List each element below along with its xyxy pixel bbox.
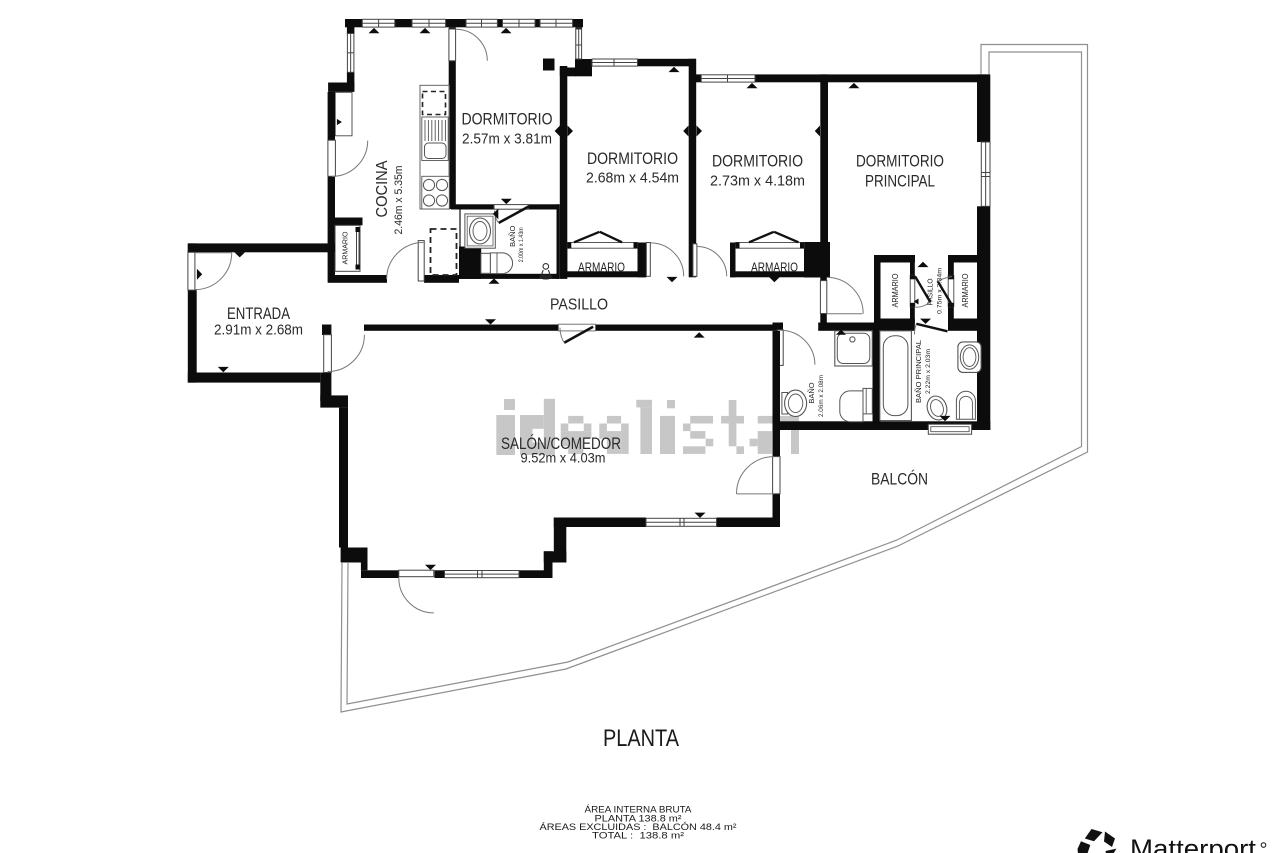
- svg-text:ENTRADA: ENTRADA: [227, 305, 290, 323]
- svg-text:2.68m x 4.54m: 2.68m x 4.54m: [586, 170, 679, 187]
- svg-text:2.00m x 1.43m: 2.00m x 1.43m: [518, 227, 525, 262]
- svg-text:2.22m x 2.03m: 2.22m x 2.03m: [925, 349, 932, 394]
- svg-text:2.06m x 2.08m: 2.06m x 2.08m: [818, 375, 825, 417]
- svg-text:ARMARIO: ARMARIO: [578, 261, 625, 275]
- svg-text:DORMITORIO: DORMITORIO: [856, 153, 944, 171]
- svg-text:2.73m x 4.18m: 2.73m x 4.18m: [710, 173, 805, 190]
- svg-text:PRINCIPAL: PRINCIPAL: [865, 173, 935, 191]
- svg-text:9.52m x 4.03m: 9.52m x 4.03m: [521, 450, 606, 466]
- svg-text:COCINA: COCINA: [374, 160, 391, 217]
- svg-text:PLANTA: PLANTA: [603, 725, 679, 752]
- svg-text:PASILLO: PASILLO: [926, 278, 935, 305]
- svg-text:Matterport: Matterport: [1130, 834, 1257, 853]
- svg-text:ARMARIO: ARMARIO: [751, 261, 798, 275]
- svg-text:BAÑO: BAÑO: [807, 382, 816, 403]
- svg-text:BALCÓN: BALCÓN: [871, 470, 928, 489]
- svg-text:TOTAL : 138.8 m²: TOTAL : 138.8 m²: [592, 831, 684, 842]
- svg-text:0.75m x 3.34m: 0.75m x 3.34m: [938, 268, 944, 314]
- svg-text:ARMARIO: ARMARIO: [961, 274, 970, 308]
- svg-text:DORMITORIO: DORMITORIO: [462, 111, 553, 129]
- svg-text:PASILLO: PASILLO: [550, 297, 608, 314]
- svg-text:2.46m x 5.35m: 2.46m x 5.35m: [393, 166, 405, 235]
- svg-text:ARMARIO: ARMARIO: [891, 274, 900, 308]
- svg-text:DORMITORIO: DORMITORIO: [712, 153, 803, 171]
- svg-text:BAÑO: BAÑO: [508, 225, 517, 246]
- svg-text:ARMARIO: ARMARIO: [341, 231, 350, 264]
- svg-text:DORMITORIO: DORMITORIO: [587, 150, 678, 168]
- svg-text:BAÑO PRINCIPAL: BAÑO PRINCIPAL: [914, 340, 923, 403]
- svg-text:2.57m x 3.81m: 2.57m x 3.81m: [462, 131, 552, 148]
- svg-text:2.91m x 2.68m: 2.91m x 2.68m: [214, 322, 303, 339]
